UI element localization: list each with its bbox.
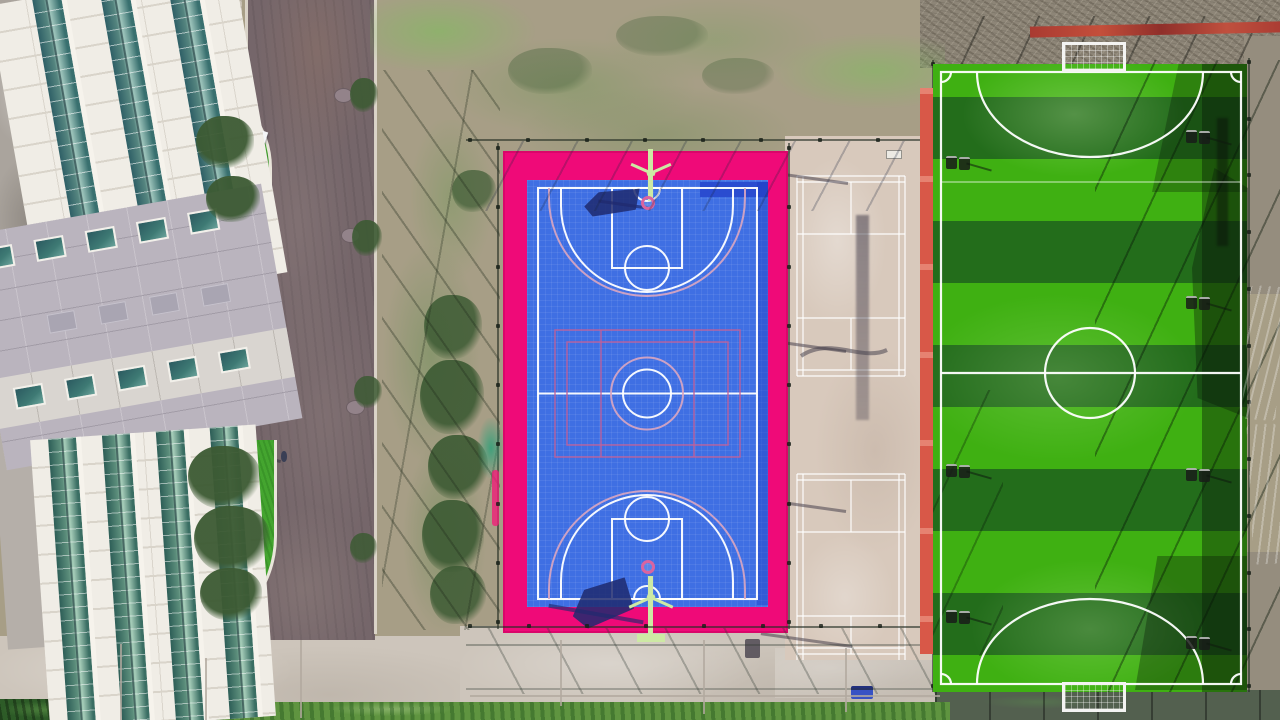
small-window bbox=[85, 226, 118, 253]
pavement-joint bbox=[120, 644, 122, 720]
pavement-joint bbox=[845, 648, 847, 712]
fence-shadow-grid-pavement bbox=[466, 628, 948, 694]
court-fence-bottom bbox=[468, 626, 944, 628]
fence-post bbox=[496, 146, 500, 150]
tall-pole-shadow-streak bbox=[856, 215, 869, 420]
fence-post bbox=[496, 265, 500, 269]
bush bbox=[188, 446, 260, 508]
soccer-goal-top bbox=[1062, 42, 1126, 72]
fence-post bbox=[527, 624, 531, 628]
small-window bbox=[115, 365, 148, 392]
fence-post bbox=[787, 442, 791, 446]
bush bbox=[350, 78, 378, 112]
bush bbox=[206, 176, 260, 222]
pavement-joint bbox=[205, 658, 207, 720]
fence-post bbox=[819, 624, 823, 628]
floodlight-fixture bbox=[946, 610, 957, 623]
floodlight-fixture bbox=[1186, 636, 1197, 649]
fence-post bbox=[496, 442, 500, 446]
fence-post bbox=[643, 138, 647, 142]
fence-post bbox=[644, 624, 648, 628]
pavement-joint-horizontal bbox=[470, 695, 940, 697]
floodlight-fixture bbox=[1186, 130, 1197, 143]
bush bbox=[616, 16, 708, 56]
fence-post bbox=[496, 205, 500, 209]
floodlight-fixture bbox=[1186, 468, 1197, 481]
fence-post bbox=[496, 620, 500, 624]
small-window bbox=[64, 374, 97, 401]
fence-post bbox=[496, 324, 500, 328]
fence-post bbox=[787, 324, 791, 328]
fence-post bbox=[787, 620, 791, 624]
bush bbox=[196, 116, 254, 168]
fence-post bbox=[818, 138, 822, 142]
soccer-field-lines bbox=[933, 64, 1247, 692]
fence-post bbox=[787, 383, 791, 387]
bush bbox=[350, 533, 377, 563]
fence-post bbox=[468, 624, 472, 628]
bush bbox=[508, 48, 592, 94]
fence-post bbox=[496, 502, 500, 506]
fence-post bbox=[787, 265, 791, 269]
fence-post bbox=[878, 624, 882, 628]
bush bbox=[194, 506, 270, 572]
bush bbox=[352, 220, 382, 256]
small-window bbox=[13, 383, 46, 410]
fence-post bbox=[787, 502, 791, 506]
fence-post bbox=[876, 138, 880, 142]
blind-window bbox=[149, 292, 180, 316]
small-window bbox=[166, 356, 199, 383]
blind-window bbox=[47, 310, 78, 334]
blind-window bbox=[200, 283, 231, 307]
blind-window bbox=[98, 301, 129, 325]
fence-post bbox=[496, 561, 500, 565]
bush bbox=[354, 376, 382, 408]
small-window bbox=[0, 244, 16, 271]
fence-post bbox=[787, 146, 791, 150]
bush bbox=[200, 568, 262, 620]
small-window bbox=[136, 217, 169, 244]
pedestrian bbox=[281, 451, 287, 462]
fence-shadow-grid-court-top bbox=[470, 141, 938, 211]
pavement-joint bbox=[300, 640, 302, 718]
curtain-wall-glass-strip bbox=[102, 433, 155, 720]
bush bbox=[702, 58, 774, 94]
green-net-on-fence bbox=[478, 418, 504, 478]
fence-post bbox=[526, 138, 530, 142]
curtain-wall-glass-strip bbox=[48, 437, 101, 720]
fence-post bbox=[585, 138, 589, 142]
fence-post bbox=[468, 138, 472, 142]
fence-post bbox=[702, 624, 706, 628]
fence-post bbox=[787, 561, 791, 565]
basketball-court-lines bbox=[527, 180, 768, 607]
basketball-ring-bottom bbox=[641, 560, 655, 574]
red-runner-strip bbox=[920, 88, 933, 654]
fence-post bbox=[585, 624, 589, 628]
fence-post bbox=[496, 383, 500, 387]
fence-post bbox=[787, 205, 791, 209]
floodlight-fixture bbox=[946, 156, 957, 169]
pink-marker-on-fence bbox=[492, 470, 499, 526]
floodlight-fixture bbox=[946, 464, 957, 477]
fence-post bbox=[761, 624, 765, 628]
fence-post bbox=[759, 138, 763, 142]
floodlight-fixture bbox=[1186, 296, 1197, 309]
small-window bbox=[33, 235, 66, 262]
fence-post bbox=[701, 138, 705, 142]
soccer-goal-bottom bbox=[1062, 682, 1126, 712]
small-window bbox=[218, 347, 251, 374]
aerial-sports-complex-photo bbox=[0, 0, 1280, 720]
pavement-joint bbox=[703, 640, 705, 714]
